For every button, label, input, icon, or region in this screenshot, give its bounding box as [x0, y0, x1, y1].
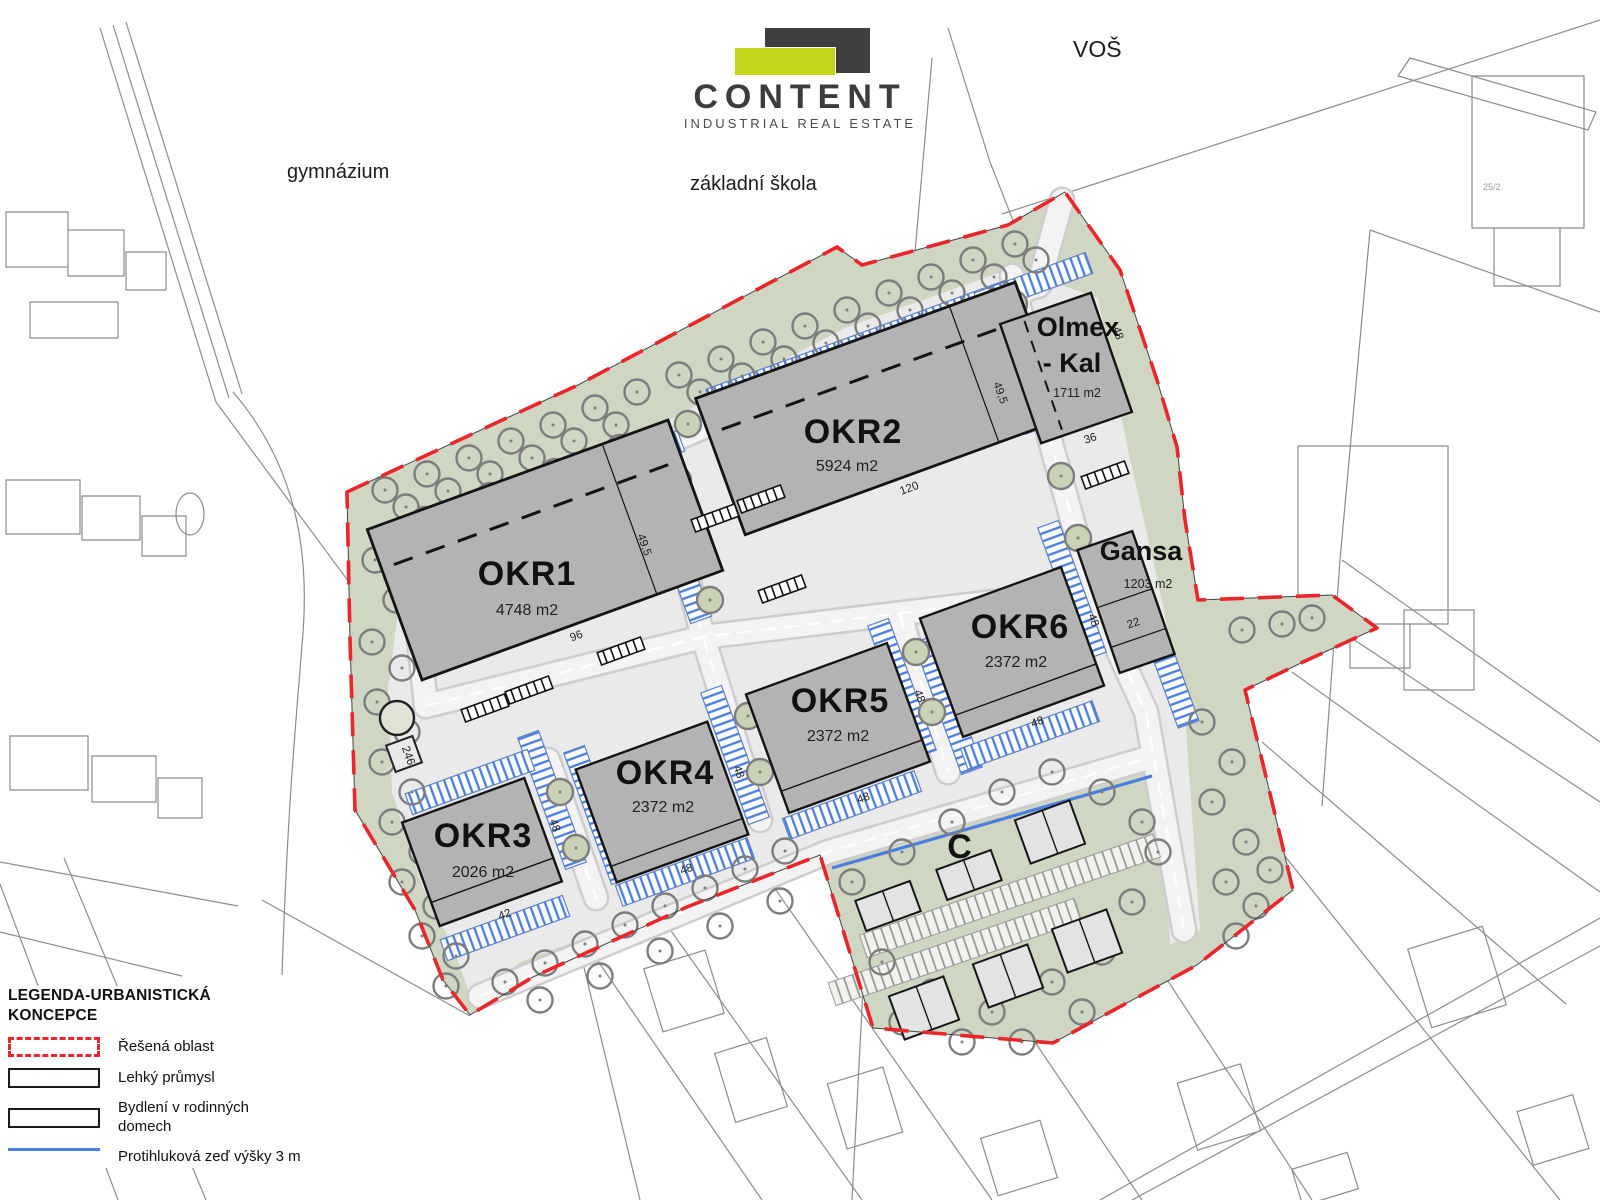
label-zakladni-skola: základní škola: [690, 173, 818, 195]
area-okr5: 2372 m2: [807, 728, 869, 745]
legend-label: Protihluková zeď výšky 3 m: [118, 1148, 301, 1167]
legend-item-resena-oblast: Řešená oblast: [8, 1037, 340, 1057]
legend-item-bydleni: Bydlení v rodinných domech: [8, 1099, 340, 1137]
outline-rect-swatch: [8, 1108, 100, 1128]
area-okr3: 2026 m2: [452, 864, 514, 881]
logo-tagline: INDUSTRIAL REAL ESTATE: [684, 116, 916, 131]
label-okr2: OKR2: [804, 413, 902, 451]
area-okr2: 5924 m2: [816, 458, 878, 475]
label-olmex-line2: - Kal: [1043, 348, 1102, 378]
legend-label: Řešená oblast: [118, 1038, 214, 1057]
blue-line-swatch: [8, 1148, 100, 1168]
red-dashed-swatch: [8, 1037, 100, 1057]
area-okr6: 2372 m2: [985, 654, 1047, 671]
label-okr4: OKR4: [616, 754, 714, 792]
logo-yellow-shape: [735, 48, 835, 75]
outline-rect-swatch: [8, 1068, 100, 1088]
label-vos: VOŠ: [1073, 35, 1122, 62]
legend-label: Bydlení v rodinných domech: [118, 1099, 288, 1137]
retention-circle: [380, 701, 414, 735]
content-logo: CONTENT INDUSTRIAL REAL ESTATE: [684, 28, 916, 131]
label-okr5: OKR5: [791, 682, 889, 720]
label-okr6: OKR6: [971, 608, 1069, 646]
label-olmex-line1: Olmex: [1037, 312, 1120, 342]
area-gansa: 1203 m2: [1124, 577, 1173, 591]
area-okr4: 2372 m2: [632, 799, 694, 816]
legend-title: LEGENDA-URBANISTICKÁ KONCEPCE: [8, 986, 238, 1026]
label-okr3: OKR3: [434, 817, 532, 855]
area-olmex: 1711 m2: [1053, 386, 1101, 400]
legend-item-protihlukova-zed: Protihluková zeď výšky 3 m: [8, 1148, 340, 1168]
label-gansa: Gansa: [1100, 536, 1184, 566]
label-parcel-25-2: 25/2: [1483, 182, 1501, 192]
logo-name: CONTENT: [693, 78, 906, 116]
site-plan-page: 246 96 120 42 48 48 48 48 48 48 48: [0, 0, 1600, 1200]
label-okr1: OKR1: [478, 555, 576, 593]
legend-item-lehky-prumysl: Lehký průmysl: [8, 1068, 340, 1088]
label-gymnazium: gymnázium: [287, 161, 389, 183]
label-c-zone: C: [947, 828, 973, 866]
area-okr1: 4748 m2: [496, 602, 558, 619]
legend-label: Lehký průmysl: [118, 1069, 215, 1088]
legend: LEGENDA-URBANISTICKÁ KONCEPCE Řešená obl…: [8, 986, 340, 1168]
